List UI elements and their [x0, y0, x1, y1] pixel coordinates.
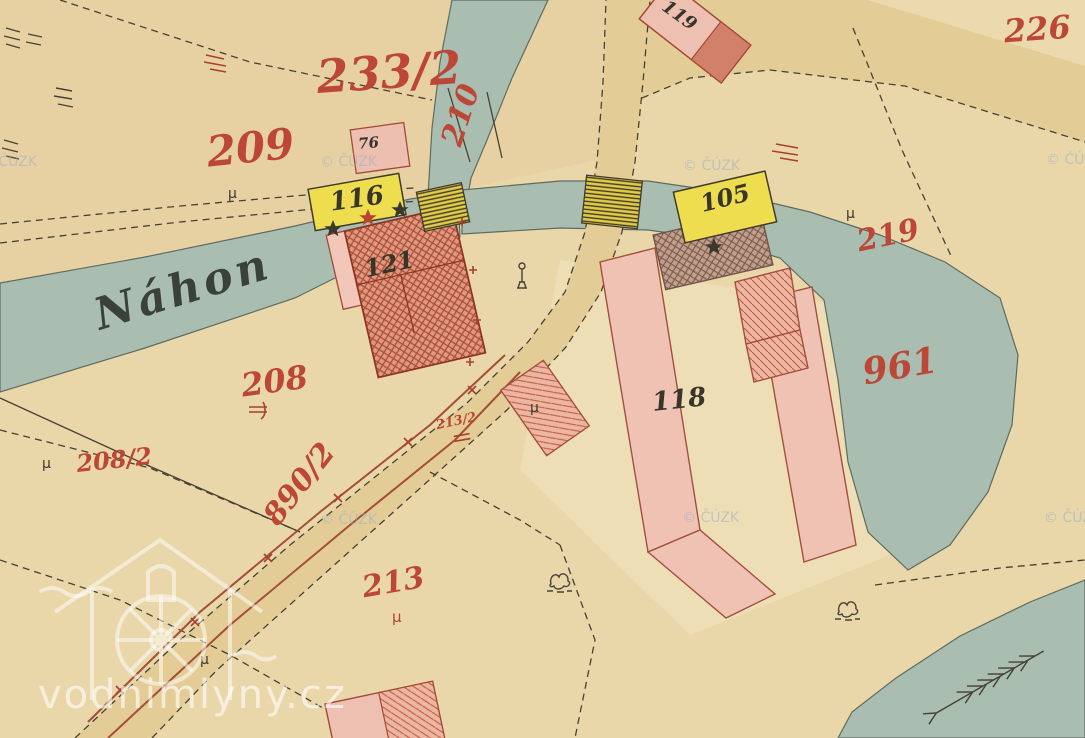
meadow-mark-red: µ	[392, 608, 402, 626]
copyright-watermark: © ČÚZK	[320, 510, 378, 528]
meadow-mark: µ	[228, 186, 237, 202]
map-canvas: 233/2 209 210 208 208/2 890/2 213 213/2 …	[0, 0, 1085, 738]
copyright-watermark: © ČÚZK	[1044, 508, 1085, 526]
parcel-label-209: 209	[203, 119, 296, 177]
copyright-watermark: © ČÚZK	[1046, 150, 1085, 168]
building-label-76: 76	[357, 133, 380, 153]
meadow-mark: µ	[42, 456, 51, 472]
footbridge-east-icon	[582, 175, 643, 229]
copyright-watermark: © ČÚZK	[683, 156, 741, 174]
building-label-118: 118	[651, 382, 708, 418]
site-watermark: vodnimlyny.cz	[38, 672, 347, 718]
copyright-watermark: © ČÚZK	[320, 152, 378, 170]
copyright-watermark: © ČÚZK	[0, 152, 38, 170]
parcel-label-233-2: 233/2	[314, 40, 463, 104]
copyright-watermark: © ČÚZK	[682, 508, 740, 526]
meadow-mark: µ	[530, 400, 539, 416]
cadastral-map-drawing: 233/2 209 210 208 208/2 890/2 213 213/2 …	[0, 0, 1085, 738]
meadow-mark: µ	[846, 206, 855, 222]
parcel-label-226: 226	[1002, 8, 1072, 51]
